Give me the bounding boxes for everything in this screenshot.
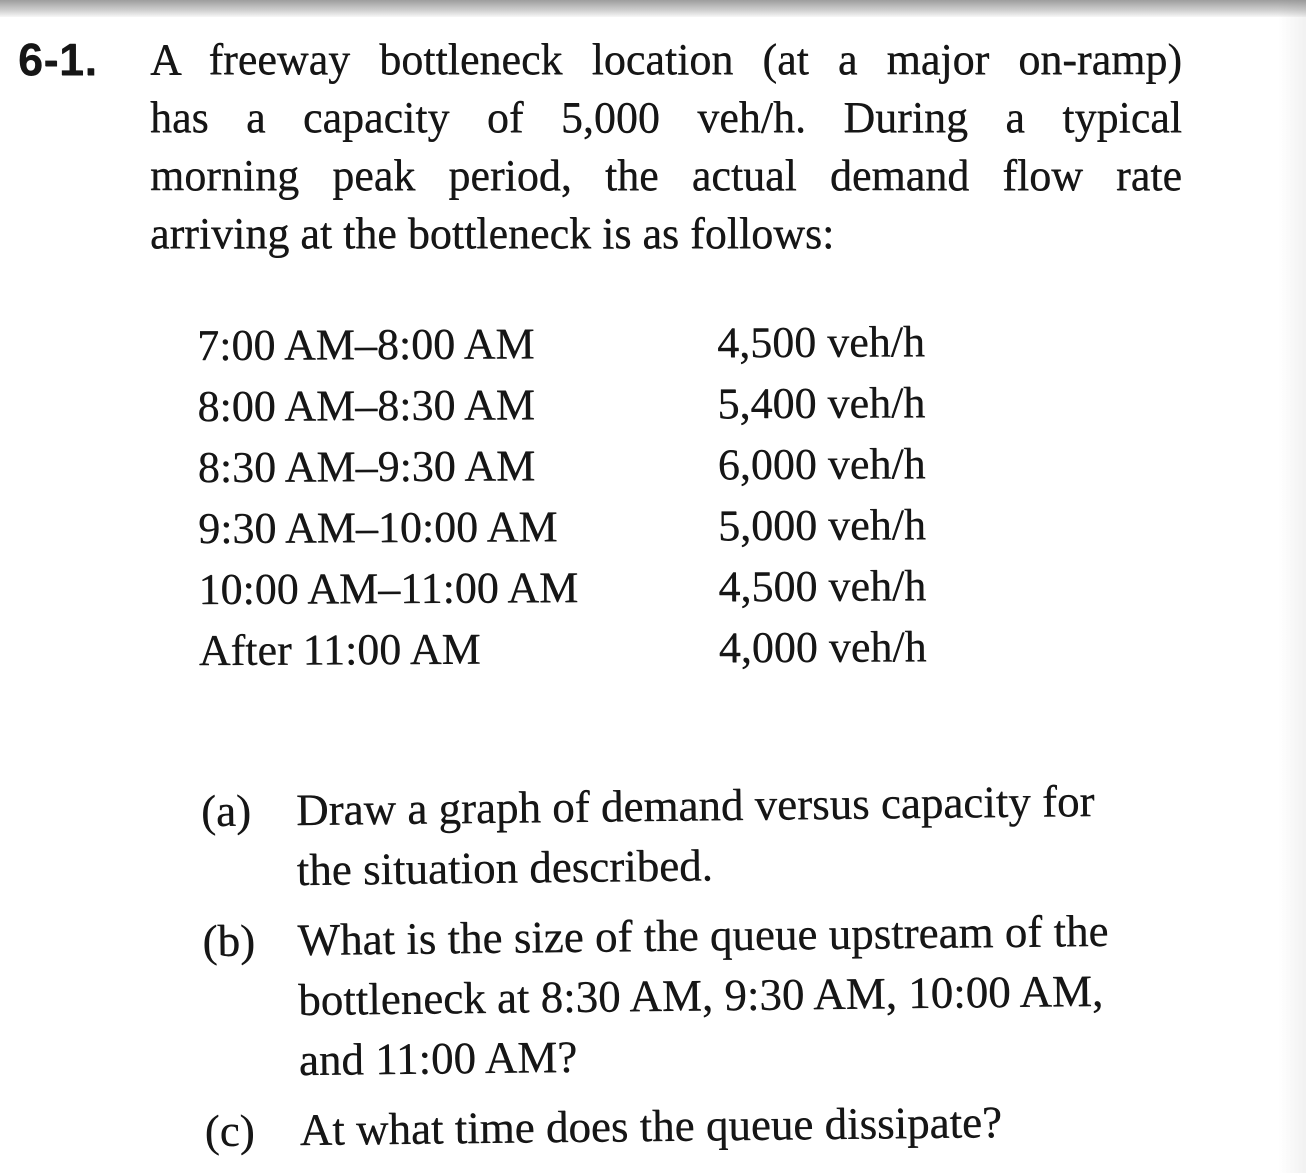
statement-line: arriving at the bottleneck is as follows… bbox=[150, 205, 1182, 263]
flow-rate-cell: 5,400 veh/h bbox=[717, 372, 925, 434]
time-period-cell: 9:30 AM–10:00 AM bbox=[198, 495, 718, 559]
table-row: 7:00 AM–8:00 AM 4,500 veh/h bbox=[197, 309, 1306, 376]
question-b: (b) What is the size of the queue upstre… bbox=[202, 899, 1305, 1091]
flow-rate-cell: 4,500 veh/h bbox=[718, 555, 926, 617]
question-line: Draw a graph of demand versus capacity f… bbox=[296, 771, 1095, 840]
question-c: (c) At what time does the queue dissipat… bbox=[204, 1089, 1306, 1161]
table-row: 8:00 AM–8:30 AM 5,400 veh/h bbox=[197, 370, 1306, 437]
time-period-cell: 8:00 AM–8:30 AM bbox=[197, 373, 717, 437]
statement-line: morning peak period, the actual demand f… bbox=[150, 147, 1182, 205]
question-text: At what time does the queue dissipate? bbox=[299, 1092, 1002, 1160]
question-line: What is the size of the queue upstream o… bbox=[297, 901, 1109, 970]
problem-number: 6-1. bbox=[0, 31, 150, 263]
question-text: Draw a graph of demand versus capacity f… bbox=[296, 771, 1096, 900]
question-line: and 11:00 AM? bbox=[299, 1021, 1111, 1090]
scan-top-edge bbox=[0, 0, 1306, 17]
table-row: 10:00 AM–11:00 AM 4,500 veh/h bbox=[198, 553, 1306, 620]
time-period-cell: 10:00 AM–11:00 AM bbox=[198, 556, 718, 620]
flow-rate-cell: 5,000 veh/h bbox=[718, 494, 926, 556]
problem-statement: A freeway bottleneck location (at a majo… bbox=[150, 31, 1182, 263]
question-label: (b) bbox=[202, 910, 299, 1091]
question-list: (a) Draw a graph of demand versus capaci… bbox=[201, 769, 1306, 1161]
statement-line: A freeway bottleneck location (at a majo… bbox=[150, 31, 1182, 89]
question-line: At what time does the queue dissipate? bbox=[299, 1092, 1002, 1160]
question-label: (c) bbox=[204, 1100, 300, 1161]
problem-page: 6-1. A freeway bottleneck location (at a… bbox=[0, 17, 1306, 1161]
question-line: the situation described. bbox=[296, 831, 1095, 900]
table-row: After 11:00 AM 4,000 veh/h bbox=[199, 614, 1306, 681]
question-label: (a) bbox=[201, 780, 297, 901]
time-period-cell: 7:00 AM–8:00 AM bbox=[197, 312, 717, 376]
question-text: What is the size of the queue upstream o… bbox=[297, 901, 1110, 1090]
table-row: 8:30 AM–9:30 AM 6,000 veh/h bbox=[198, 431, 1306, 498]
time-period-cell: 8:30 AM–9:30 AM bbox=[198, 434, 718, 498]
flow-rate-cell: 4,500 veh/h bbox=[717, 311, 925, 373]
question-a: (a) Draw a graph of demand versus capaci… bbox=[201, 769, 1303, 901]
problem-statement-block: 6-1. A freeway bottleneck location (at a… bbox=[0, 31, 1306, 263]
flow-rate-cell: 6,000 veh/h bbox=[718, 433, 926, 495]
table-row: 9:30 AM–10:00 AM 5,000 veh/h bbox=[198, 492, 1306, 559]
statement-line: has a capacity of 5,000 veh/h. During a … bbox=[150, 89, 1182, 147]
demand-flow-table: 7:00 AM–8:00 AM 4,500 veh/h 8:00 AM–8:30… bbox=[197, 309, 1306, 681]
question-line: bottleneck at 8:30 AM, 9:30 AM, 10:00 AM… bbox=[298, 961, 1110, 1030]
flow-rate-cell: 4,000 veh/h bbox=[719, 616, 927, 678]
time-period-cell: After 11:00 AM bbox=[199, 617, 719, 681]
